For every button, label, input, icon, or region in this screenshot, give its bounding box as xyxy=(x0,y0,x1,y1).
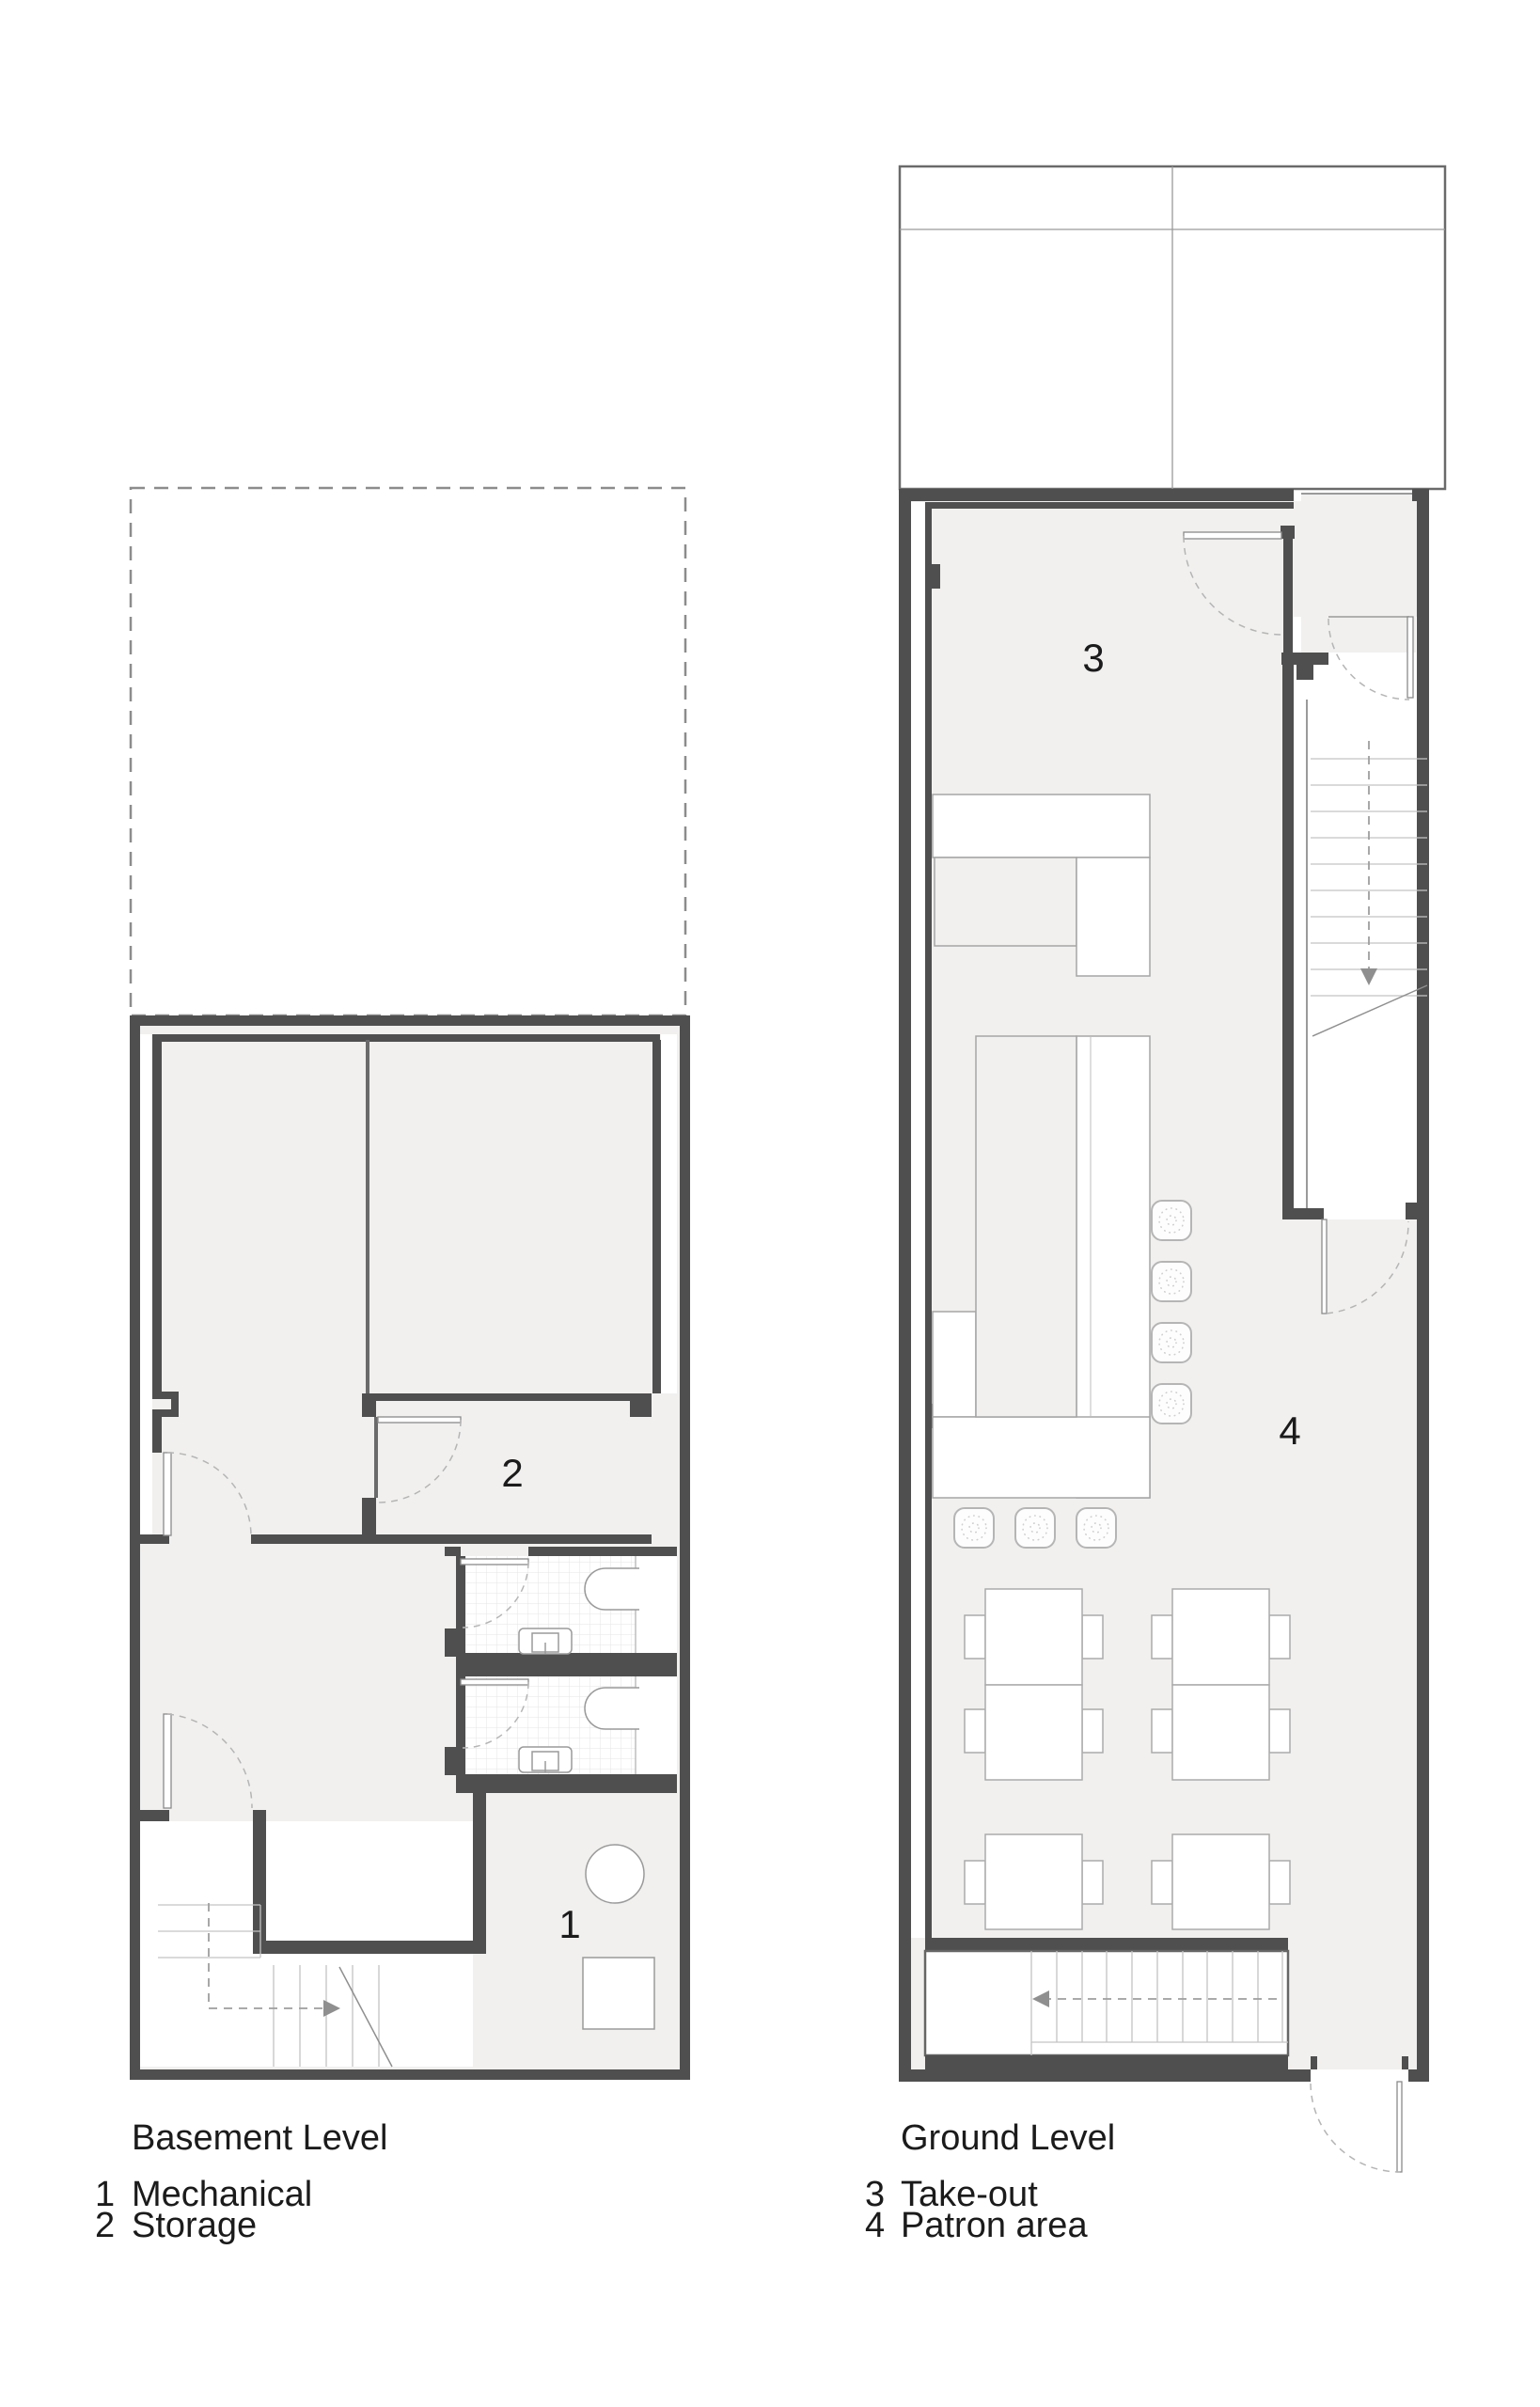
basement-dashed-outline xyxy=(131,488,685,1015)
ground-title: Ground Level xyxy=(901,2118,1115,2158)
basement-plan: 2 1 xyxy=(130,488,690,2080)
ground-label-patron: 4 xyxy=(1279,1408,1300,1453)
ground-patio-outline xyxy=(900,166,1445,489)
ground-label-takeout: 3 xyxy=(1082,636,1104,680)
water-tank-icon xyxy=(586,1845,644,1903)
basement-title: Basement Level xyxy=(132,2118,388,2158)
ground-plan: 3 4 xyxy=(899,166,1445,2172)
basement-item-2-num: 2 xyxy=(95,2206,115,2245)
basement-item-2-label: Storage xyxy=(132,2206,257,2245)
plan-drawing: 2 1 xyxy=(0,0,1540,2407)
ground-stair-shaft xyxy=(1294,617,1417,1219)
floor-plan-sheet: 2 1 xyxy=(0,0,1540,2407)
ground-item-4-num: 4 xyxy=(865,2206,885,2245)
basement-label-mechanical: 1 xyxy=(558,1902,580,1946)
legend: Basement Level 1 Mechanical 2 Storage Gr… xyxy=(95,2118,1115,2245)
entry-vestibule xyxy=(1301,493,1416,653)
ground-item-4-label: Patron area xyxy=(901,2206,1088,2245)
ground-bottom-stairs xyxy=(925,1938,1288,2069)
basement-label-storage: 2 xyxy=(501,1451,523,1495)
entry-door-leaf xyxy=(1397,2082,1402,2172)
equipment-box-icon xyxy=(583,1958,654,2029)
entry-door-swing xyxy=(1311,2084,1400,2172)
